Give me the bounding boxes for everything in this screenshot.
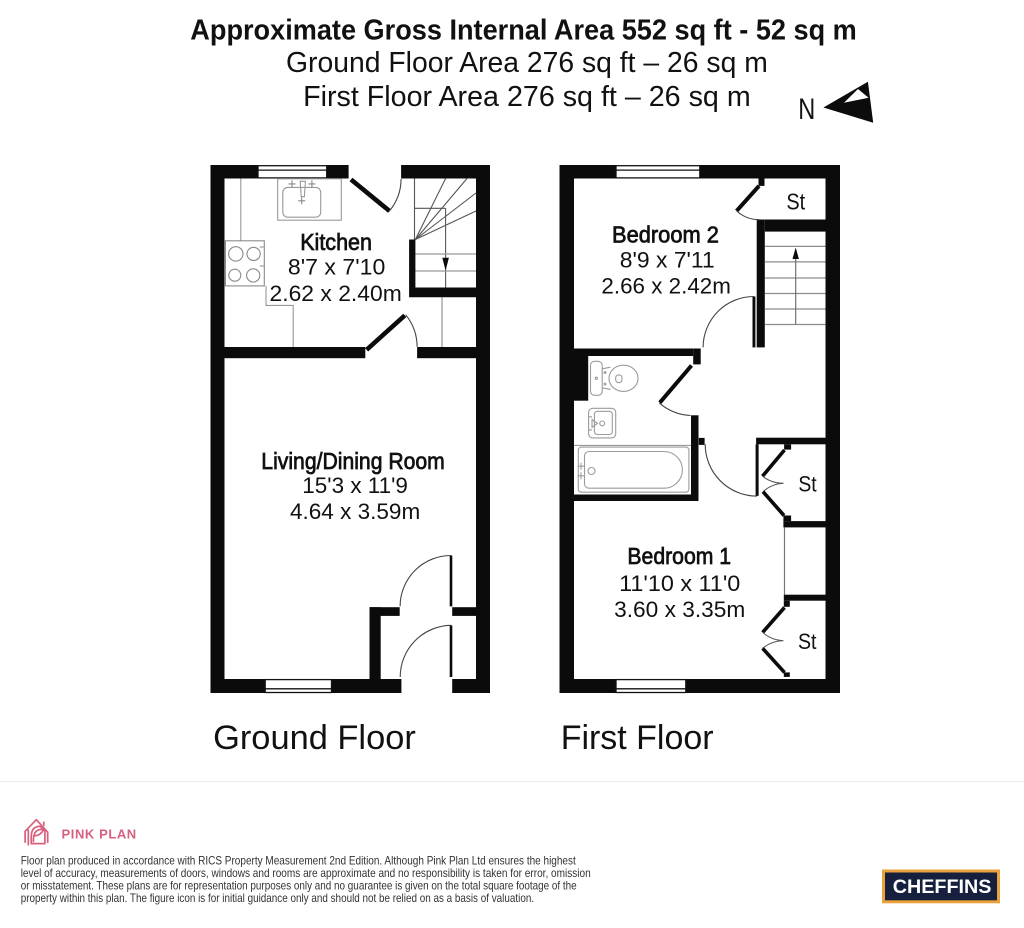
svg-text:St: St <box>798 472 817 497</box>
svg-text:level of accuracy, measurement: level of accuracy, measurements of doors… <box>21 867 591 880</box>
svg-text:Living/Dining Room: Living/Dining Room <box>261 448 445 474</box>
svg-text:Kitchen: Kitchen <box>300 229 372 255</box>
svg-text:N: N <box>798 93 815 126</box>
svg-text:8'9 x 7'11: 8'9 x 7'11 <box>620 247 715 272</box>
svg-text:3.60 x 3.35m: 3.60 x 3.35m <box>614 597 745 622</box>
svg-text:15'3 x 11'9: 15'3 x 11'9 <box>302 473 408 498</box>
svg-text:2.62 x 2.40m: 2.62 x 2.40m <box>270 281 402 306</box>
svg-text:PINK PLAN: PINK PLAN <box>62 826 137 841</box>
svg-text:First Floor: First Floor <box>561 719 714 757</box>
svg-text:property within this plan. The: property within this plan. The figure ic… <box>21 892 534 905</box>
svg-text:11'10 x 11'0: 11'10 x 11'0 <box>619 571 740 596</box>
svg-text:Ground Floor Area 276 sq ft –: Ground Floor Area 276 sq ft – 26 sq m <box>286 47 768 79</box>
svg-text:2.66 x 2.42m: 2.66 x 2.42m <box>601 274 731 299</box>
svg-text:4.64 x 3.59m: 4.64 x 3.59m <box>290 499 420 524</box>
svg-text:First Floor Area 276 sq ft – 2: First Floor Area 276 sq ft – 26 sq m <box>303 81 751 113</box>
svg-text:St: St <box>786 189 805 215</box>
svg-text:8'7 x 7'10: 8'7 x 7'10 <box>288 255 385 280</box>
svg-text:Bedroom 1: Bedroom 1 <box>627 543 731 569</box>
svg-text:CHEFFINS: CHEFFINS <box>893 876 992 898</box>
svg-text:Bedroom 2: Bedroom 2 <box>612 222 719 248</box>
svg-text:Approximate Gross Internal Are: Approximate Gross Internal Area 552 sq f… <box>190 15 857 47</box>
svg-text:Floor plan produced in accorda: Floor plan produced in accordance with R… <box>21 854 577 867</box>
svg-text:or misstatement. These plans a: or misstatement. These plans are for rep… <box>21 879 577 892</box>
svg-text:St: St <box>798 629 817 654</box>
svg-text:Ground Floor: Ground Floor <box>213 719 416 757</box>
